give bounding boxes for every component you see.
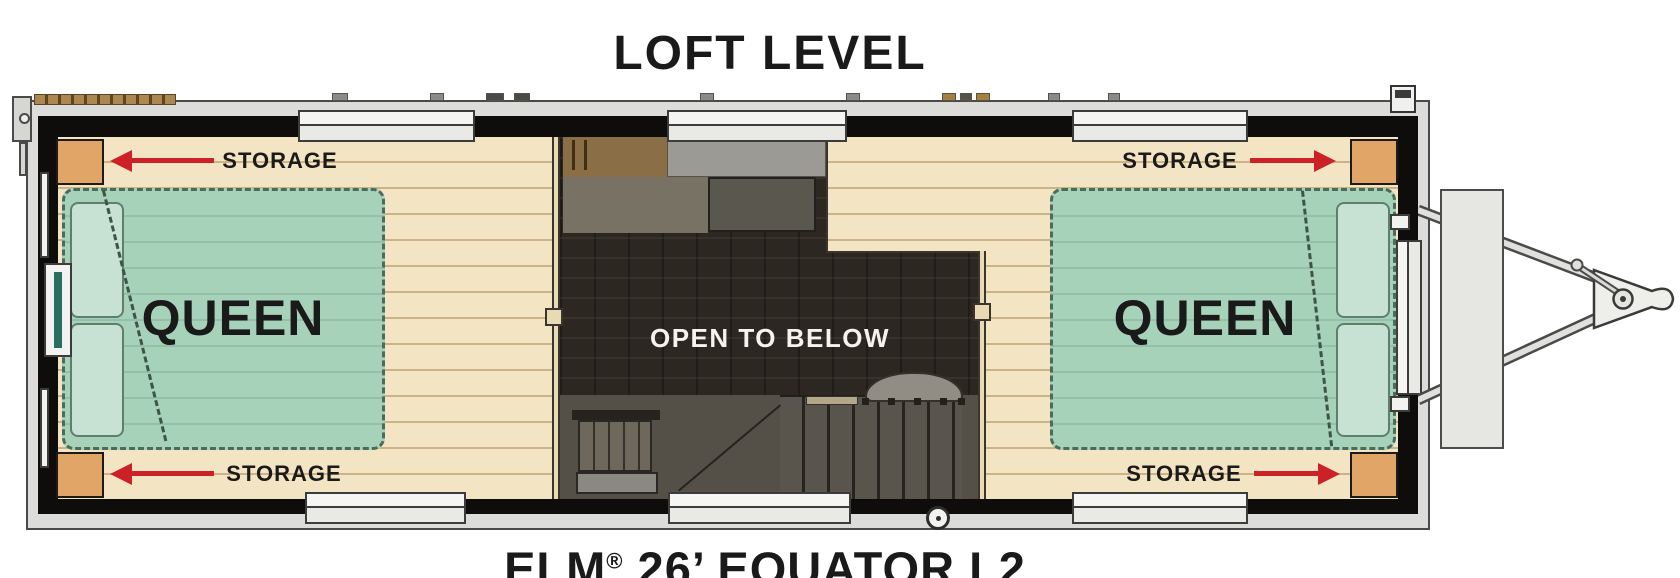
storage-arrow-left-icon — [110, 463, 132, 485]
rail-post-right — [973, 303, 991, 321]
loft-rail-right — [978, 251, 986, 499]
roof-fitting — [1108, 93, 1120, 101]
sofa-slats — [578, 420, 652, 472]
appliance-below — [708, 177, 816, 232]
baluster — [914, 398, 921, 405]
roof-fitting — [942, 93, 956, 101]
storage-arrow-left-icon — [130, 158, 214, 163]
roof-fitting — [430, 93, 444, 101]
sofa-back — [572, 410, 660, 420]
floorplan-canvas: LOFT LEVEL OPEN TO BELOW — [0, 0, 1680, 578]
sofa-seat — [576, 472, 658, 494]
roof-fitting — [846, 93, 860, 101]
roof-fitting — [1048, 93, 1060, 101]
storage-label-top-left: STORAGE — [218, 148, 342, 174]
counter-below — [667, 137, 826, 177]
stabilizer-jack — [926, 506, 950, 530]
model-title: ELM® 26’ EQUATOR L2 — [395, 541, 1135, 578]
jack-handle-knob — [1572, 260, 1583, 271]
baluster — [958, 398, 965, 405]
storage-arrow-left-icon — [110, 150, 132, 172]
roof-fitting — [976, 93, 990, 101]
baluster — [862, 398, 869, 405]
stairs-treads — [780, 395, 962, 499]
counter-area-below — [563, 177, 708, 233]
roof-fitting — [700, 93, 714, 101]
storage-arrow-right-icon — [1250, 158, 1314, 163]
window — [667, 110, 847, 142]
window — [40, 388, 49, 468]
door-latch — [1390, 214, 1410, 230]
cabinet-grain — [572, 140, 575, 170]
kitchen-cabinet-below — [563, 137, 667, 177]
storage-label-bottom-right: STORAGE — [1122, 461, 1246, 487]
window — [1072, 492, 1248, 524]
loft-walkway-floor — [826, 137, 986, 253]
roof-fitting — [486, 93, 504, 101]
queen-bed-left-label: QUEEN — [98, 289, 368, 347]
bracket-bolt — [19, 113, 30, 124]
queen-bed-right-label: QUEEN — [1070, 289, 1340, 347]
door-latch — [1390, 396, 1410, 412]
baluster — [940, 398, 947, 405]
roof-vent-box — [1390, 85, 1416, 113]
storage-arrow-right-icon — [1318, 463, 1340, 485]
storage-cube-top-left — [56, 139, 104, 185]
window — [298, 110, 475, 142]
plan-level-title: LOFT LEVEL — [470, 26, 1070, 81]
rear-bracket-pin — [19, 142, 27, 176]
roof-fitting — [514, 93, 530, 101]
storage-arrow-right-icon — [1254, 471, 1318, 476]
cabinet-grain — [584, 140, 587, 170]
stair-handrail — [806, 396, 858, 405]
open-to-below-label: OPEN TO BELOW — [620, 323, 920, 354]
storage-label-top-right: STORAGE — [1118, 148, 1242, 174]
storage-cube-bottom-right — [1350, 452, 1398, 498]
window — [305, 492, 466, 524]
registered-trademark-icon: ® — [606, 548, 623, 573]
window — [40, 172, 49, 258]
pillow — [1336, 323, 1390, 437]
storage-label-bottom-left: STORAGE — [222, 461, 346, 487]
pillow — [1336, 202, 1390, 318]
rear-window-glass — [54, 272, 62, 348]
rail-post-left — [545, 308, 563, 326]
storage-arrow-right-icon — [1314, 150, 1336, 172]
model-title-suffix: 26’ EQUATOR L2 — [624, 542, 1026, 578]
window — [1072, 110, 1248, 142]
roof-fitting — [960, 93, 972, 101]
roof-fitting — [332, 93, 348, 101]
storage-cube-top-right — [1350, 139, 1398, 185]
entry-porch-step — [1440, 189, 1504, 449]
storage-cube-bottom-left — [56, 452, 104, 498]
window — [668, 492, 851, 524]
baluster — [888, 398, 895, 405]
storage-arrow-left-icon — [130, 471, 214, 476]
roof-slide-track — [34, 94, 176, 105]
model-title-prefix: ELM — [504, 542, 606, 578]
